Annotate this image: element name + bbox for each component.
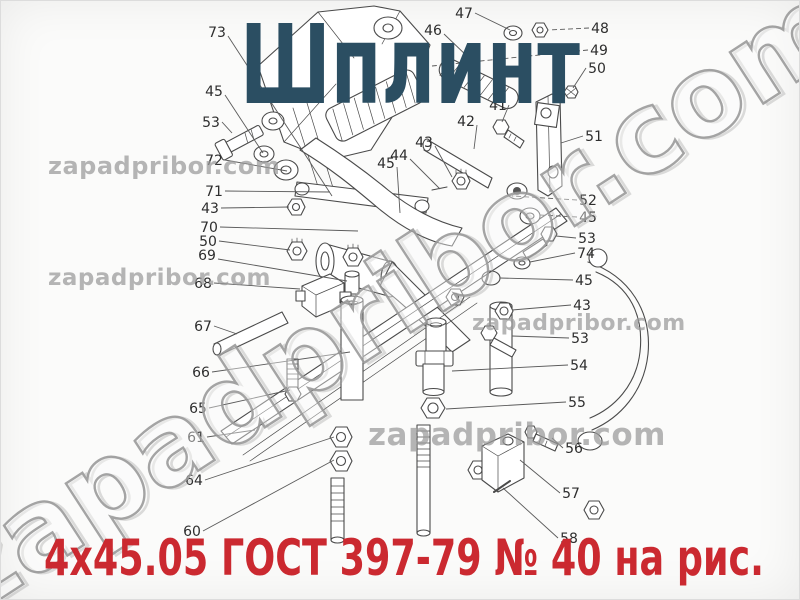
part-number: 48 [591, 21, 609, 37]
part-number: 57 [562, 486, 580, 502]
leader-line [512, 336, 569, 338]
part-number: 54 [570, 358, 588, 374]
page-title: Шплинт [240, 1, 580, 129]
leader-line [219, 241, 290, 250]
part-number: 49 [590, 43, 608, 59]
watermark-text: zapadpribor.com [48, 152, 280, 180]
part-number: 67 [194, 319, 212, 335]
part-number: 71 [205, 184, 223, 200]
leader-line [220, 227, 358, 231]
leader-line [520, 460, 560, 493]
part-number: 45 [575, 273, 593, 289]
part-number: 50 [588, 61, 606, 77]
product-image: 7345537271437050696867666561646046474849… [0, 0, 800, 600]
part-number: 43 [415, 135, 433, 151]
part-number: 55 [568, 395, 586, 411]
leader-line [221, 207, 289, 208]
leader-line [222, 122, 232, 133]
part-number: 45 [205, 84, 223, 100]
leader-line [410, 159, 440, 189]
part-number: 53 [202, 115, 220, 131]
watermark-text: zapadpribor.com [368, 417, 666, 453]
watermark-text: zapadpribor.com [48, 265, 271, 291]
leader-line [446, 402, 566, 409]
part-number: 45 [377, 156, 395, 172]
leader-line [512, 305, 571, 310]
technical-diagram-svg: 7345537271437050696867666561646046474849… [0, 0, 800, 600]
watermark-text: zapadpribor.com [472, 311, 686, 336]
part-number: 73 [208, 25, 226, 41]
part-number: 69 [198, 248, 216, 264]
caption-text: 4x45.05 ГОСТ 397-79 № 40 на рис. [44, 529, 764, 587]
part-number: 43 [201, 201, 219, 217]
